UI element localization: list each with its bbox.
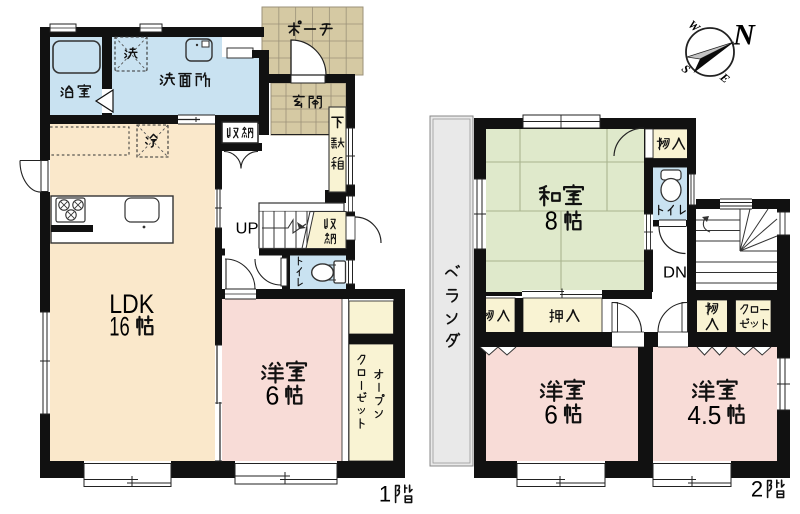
svg-text:UP: UP: [236, 221, 259, 238]
svg-text:1: 1: [379, 482, 391, 507]
svg-text:N: N: [732, 19, 756, 52]
svg-text:DN: DN: [663, 265, 687, 282]
svg-text:6: 6: [265, 381, 279, 411]
svg-text:4.5: 4.5: [687, 400, 721, 430]
svg-text:8: 8: [545, 206, 558, 236]
svg-text:2: 2: [751, 477, 763, 502]
svg-text:6: 6: [544, 400, 558, 430]
svg-text:16: 16: [109, 312, 130, 342]
